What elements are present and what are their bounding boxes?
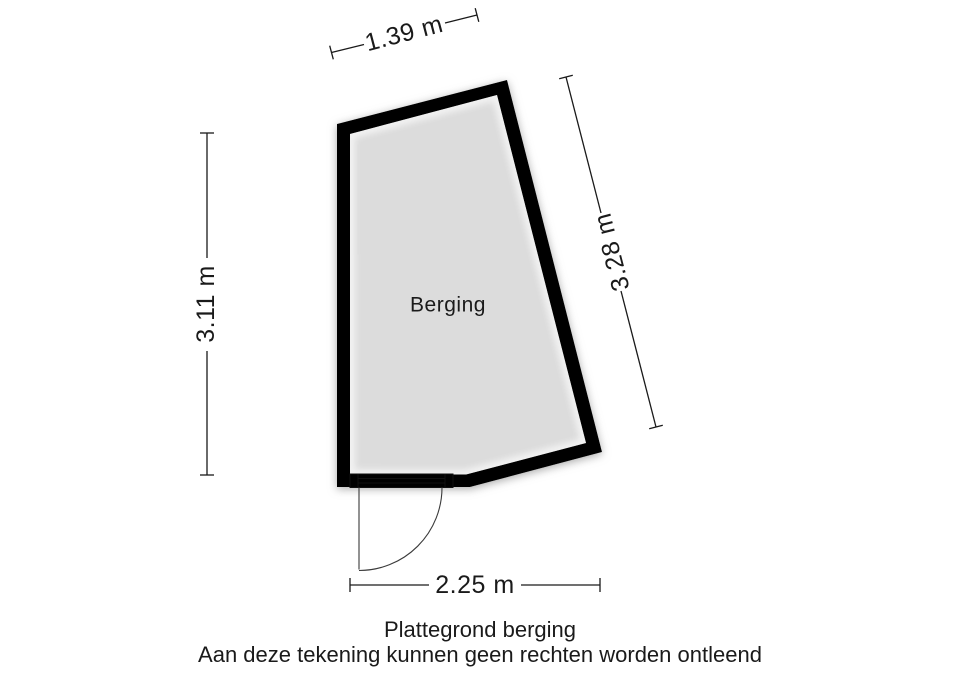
- dimension-right-label: 3.28 m: [589, 210, 636, 294]
- caption-disclaimer: Aan deze tekening kunnen geen rechten wo…: [198, 642, 762, 667]
- dimension-right-line-bottom: [621, 291, 656, 427]
- door-swing-arc: [359, 488, 442, 571]
- dimension-bottom-label: 2.25 m: [435, 571, 514, 599]
- floor-plan-canvas: 1.39 m 3.11 m 3.28 m 2.25 m Berging: [0, 0, 960, 679]
- caption-title: Plattegrond berging: [384, 617, 576, 642]
- dimension-left: 3.11 m: [192, 133, 220, 475]
- dimension-bottom: 2.25 m: [350, 571, 600, 599]
- dimension-right-line-top: [566, 77, 601, 213]
- dimension-top: 1.39 m: [330, 8, 479, 59]
- dimension-top-line-left: [332, 45, 365, 53]
- dimension-top-label: 1.39 m: [362, 10, 446, 57]
- door: [350, 474, 453, 571]
- room-label: Berging: [410, 294, 486, 317]
- dimension-left-label: 3.11 m: [192, 265, 220, 343]
- dimension-top-line-right: [445, 15, 477, 23]
- floor-plan-page: 1.39 m 3.11 m 3.28 m 2.25 m Berging: [0, 0, 960, 679]
